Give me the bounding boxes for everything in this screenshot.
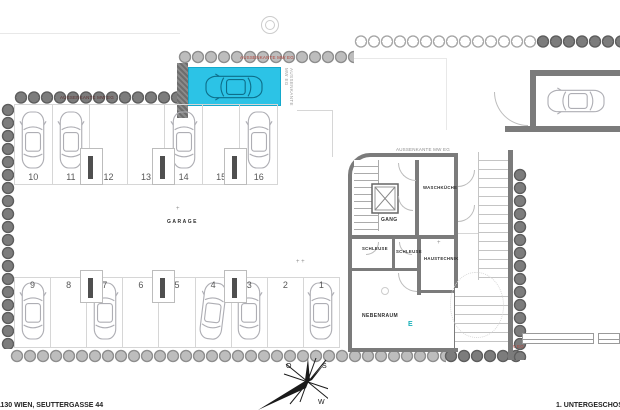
wall-annotation: AUSSENKANTE MW EG: [240, 55, 294, 60]
gravel-strip-top-far-right: [536, 33, 620, 50]
parking-space-number: 10: [15, 172, 52, 182]
address-label: 1130 WIEN, SEUTTERGASSE 44: [0, 402, 103, 409]
column: [224, 270, 247, 303]
fence: [598, 333, 620, 344]
car-icon: [201, 72, 267, 102]
room-label-nebenraum: NEBENRAUM: [362, 313, 398, 319]
parking-space-10: 10: [14, 105, 53, 184]
car-icon: [245, 109, 273, 171]
room-label-schleuse-b: SCHLEUSE: [396, 249, 422, 254]
car-icon: [19, 109, 47, 171]
tree-icon: [450, 272, 504, 338]
column: [80, 148, 103, 185]
wall-annotation-vertical: AUSSENKANTE MW EG: [284, 68, 294, 116]
outline: [458, 233, 478, 234]
room-label-waschkueche: WASCHKÜCHE: [423, 185, 457, 190]
level-label: 1. UNTERGESCHOSS: [556, 402, 620, 409]
site-line: [0, 33, 180, 34]
wall-segment: [352, 268, 420, 271]
car-icon: [543, 86, 609, 116]
wall-annotation: AUSSENKANTE MW EG: [396, 147, 450, 152]
site-line: [352, 58, 446, 59]
floor-plan: AUSSENKANTE MW EG AUSSENKANTE MW EG AUSS…: [0, 0, 620, 410]
room-label-haustechnik: HAUSTECHNIK: [424, 256, 459, 261]
car-icon: [19, 109, 47, 171]
level-marker: + +: [296, 259, 305, 265]
column: [80, 270, 103, 303]
room-label-gang: GANG: [381, 217, 398, 223]
compass-w: W: [318, 399, 325, 406]
car-icon: [545, 87, 607, 115]
gravel-strip-top-right: [354, 33, 536, 50]
wall-segment: [508, 150, 513, 360]
parking-space-9: 9: [14, 278, 51, 347]
elevator-icon: [371, 183, 399, 214]
exterior-stairs: [478, 152, 508, 280]
gravel-strip-right: [512, 168, 528, 360]
column: [152, 270, 175, 303]
parking-space-number: 1: [304, 280, 339, 290]
wall-segment: [530, 70, 536, 130]
column: [224, 148, 247, 185]
level-marker: +: [176, 206, 180, 212]
car-icon: [245, 109, 273, 171]
wall-segment: [530, 70, 620, 76]
parking-space-number: 9: [15, 280, 50, 290]
door-arc: [494, 92, 528, 126]
door-arc: [458, 205, 475, 222]
parking-space-1: 1: [304, 278, 340, 347]
compass-s: S: [322, 363, 327, 370]
electric-marker: E: [408, 321, 413, 328]
wall-segment: [505, 126, 620, 132]
outline: [332, 110, 333, 157]
wall-segment: [417, 235, 421, 295]
fence: [522, 333, 594, 344]
parking-space-number: 2: [268, 280, 303, 290]
car-icon: [203, 73, 265, 101]
wall-segment: [392, 239, 395, 269]
room-label-garage: GARAGE: [167, 219, 198, 225]
floor-drain-icon: [381, 287, 389, 295]
room-label-schleuse-a: SCHLEUSE: [362, 246, 388, 251]
level-marker: +: [437, 240, 441, 246]
parking-space-2: 2: [268, 278, 304, 347]
door-arc: [458, 170, 475, 187]
compass-o: O: [286, 363, 292, 370]
outline: [297, 110, 333, 111]
compass-rose: O S W: [256, 352, 328, 410]
wall-annotation: AUSSENKANTE MW EG: [60, 95, 114, 100]
gravel-strip-left: [1, 103, 15, 349]
parking-row-bottom: 98 765 4 32: [14, 277, 340, 348]
highlighted-parking-space[interactable]: [188, 67, 281, 106]
site-line: [446, 58, 447, 130]
wall-segment: [352, 235, 458, 239]
manhole-icon: [265, 20, 275, 30]
column: [152, 148, 175, 185]
